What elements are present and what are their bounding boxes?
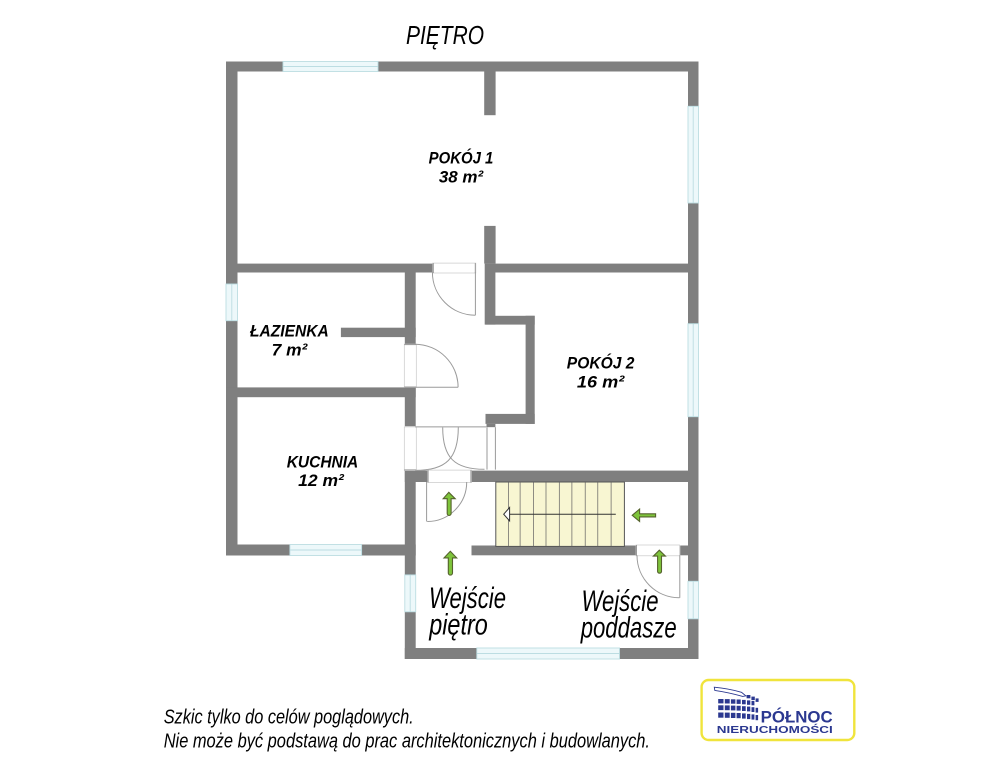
svg-text:KUCHNIA: KUCHNIA [287,453,359,471]
svg-text:POKÓJ 2: POKÓJ 2 [567,353,635,372]
svg-text:NIERUCHOMOŚCI: NIERUCHOMOŚCI [717,723,833,736]
svg-text:PÓŁNOC: PÓŁNOC [761,707,833,726]
svg-text:PIĘTRO: PIĘTRO [406,20,484,50]
svg-text:piętro: piętro [428,609,487,642]
svg-text:38 m²: 38 m² [439,169,484,187]
svg-text:16 m²: 16 m² [577,373,625,391]
svg-text:poddasze: poddasze [580,612,677,645]
svg-text:7 m²: 7 m² [272,342,308,360]
svg-text:12 m²: 12 m² [298,472,344,490]
svg-text:ŁAZIENKA: ŁAZIENKA [249,323,329,341]
svg-text:POKÓJ 1: POKÓJ 1 [429,149,494,168]
svg-text:Nie może być podstawą do prac: Nie może być podstawą do prac architekto… [164,731,650,753]
svg-text:Szkic tylko do celów poglądowy: Szkic tylko do celów poglądowych. [164,707,414,729]
